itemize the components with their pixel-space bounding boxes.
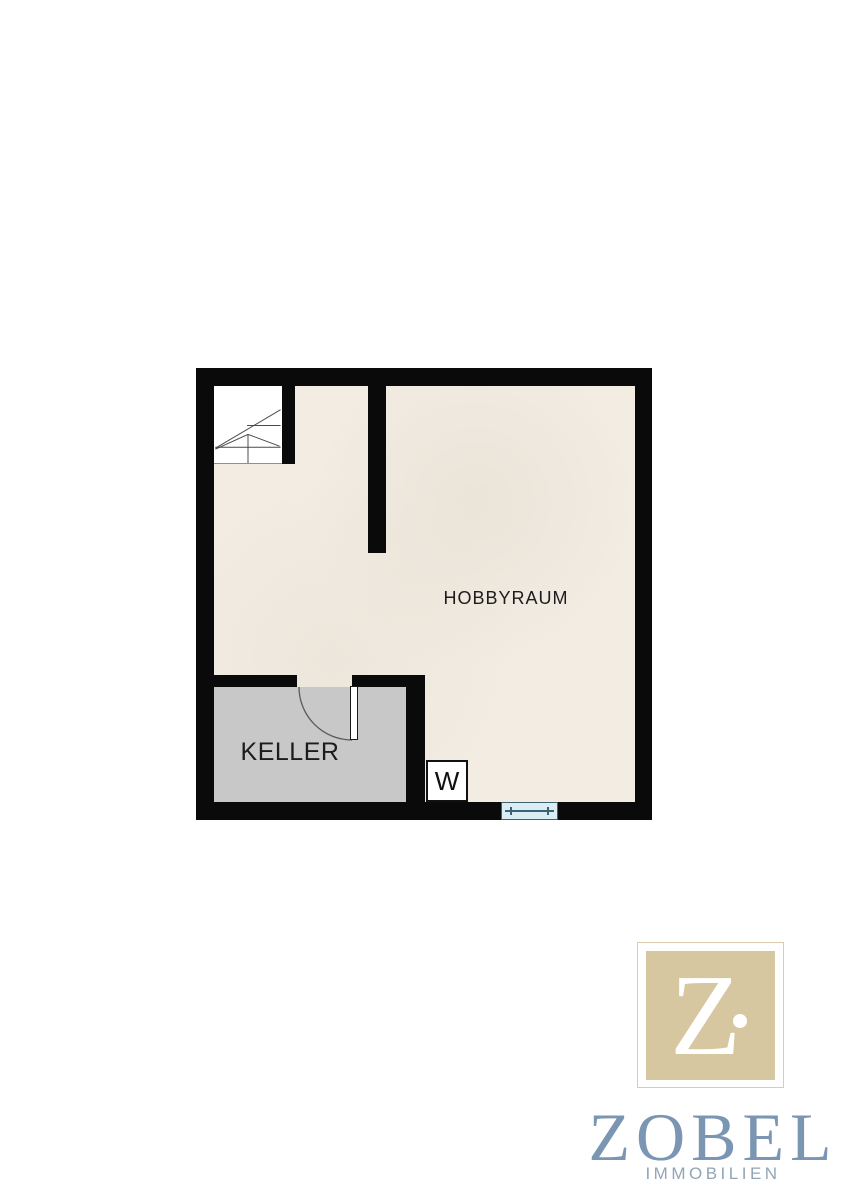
floorplan: W HOBBYRAUM KELLER: [196, 368, 652, 820]
logo-subtitle: IMMOBILIEN: [578, 1164, 848, 1184]
stairwell-wall: [282, 386, 295, 464]
stairs-icon: [214, 386, 282, 463]
logo-monogram-square: Z: [646, 951, 775, 1080]
floorplan-page: W HOBBYRAUM KELLER Z ZOBEL IMMOBILIEN: [0, 0, 848, 1200]
window-icon: [501, 802, 558, 820]
room-label-hobbyraum: HOBBYRAUM: [396, 587, 616, 609]
door-swing-icon: [297, 686, 354, 742]
logo-monogram-dot: [733, 1014, 747, 1028]
interior-wall: [368, 386, 386, 553]
washer-label: W: [435, 766, 460, 797]
window-frame-tick: [510, 807, 512, 815]
washer-box: W: [426, 760, 468, 802]
logo-wordmark: ZOBEL: [578, 1103, 848, 1171]
keller-wall-left: [214, 675, 297, 687]
keller-side-wall: [406, 675, 425, 802]
door-leaf: [350, 686, 358, 740]
stairwell: [214, 386, 282, 464]
logo-monogram-letter: Z: [670, 958, 741, 1074]
room-label-keller: KELLER: [220, 739, 360, 765]
window-frame-tick: [547, 807, 549, 815]
company-logo: Z: [637, 942, 784, 1088]
